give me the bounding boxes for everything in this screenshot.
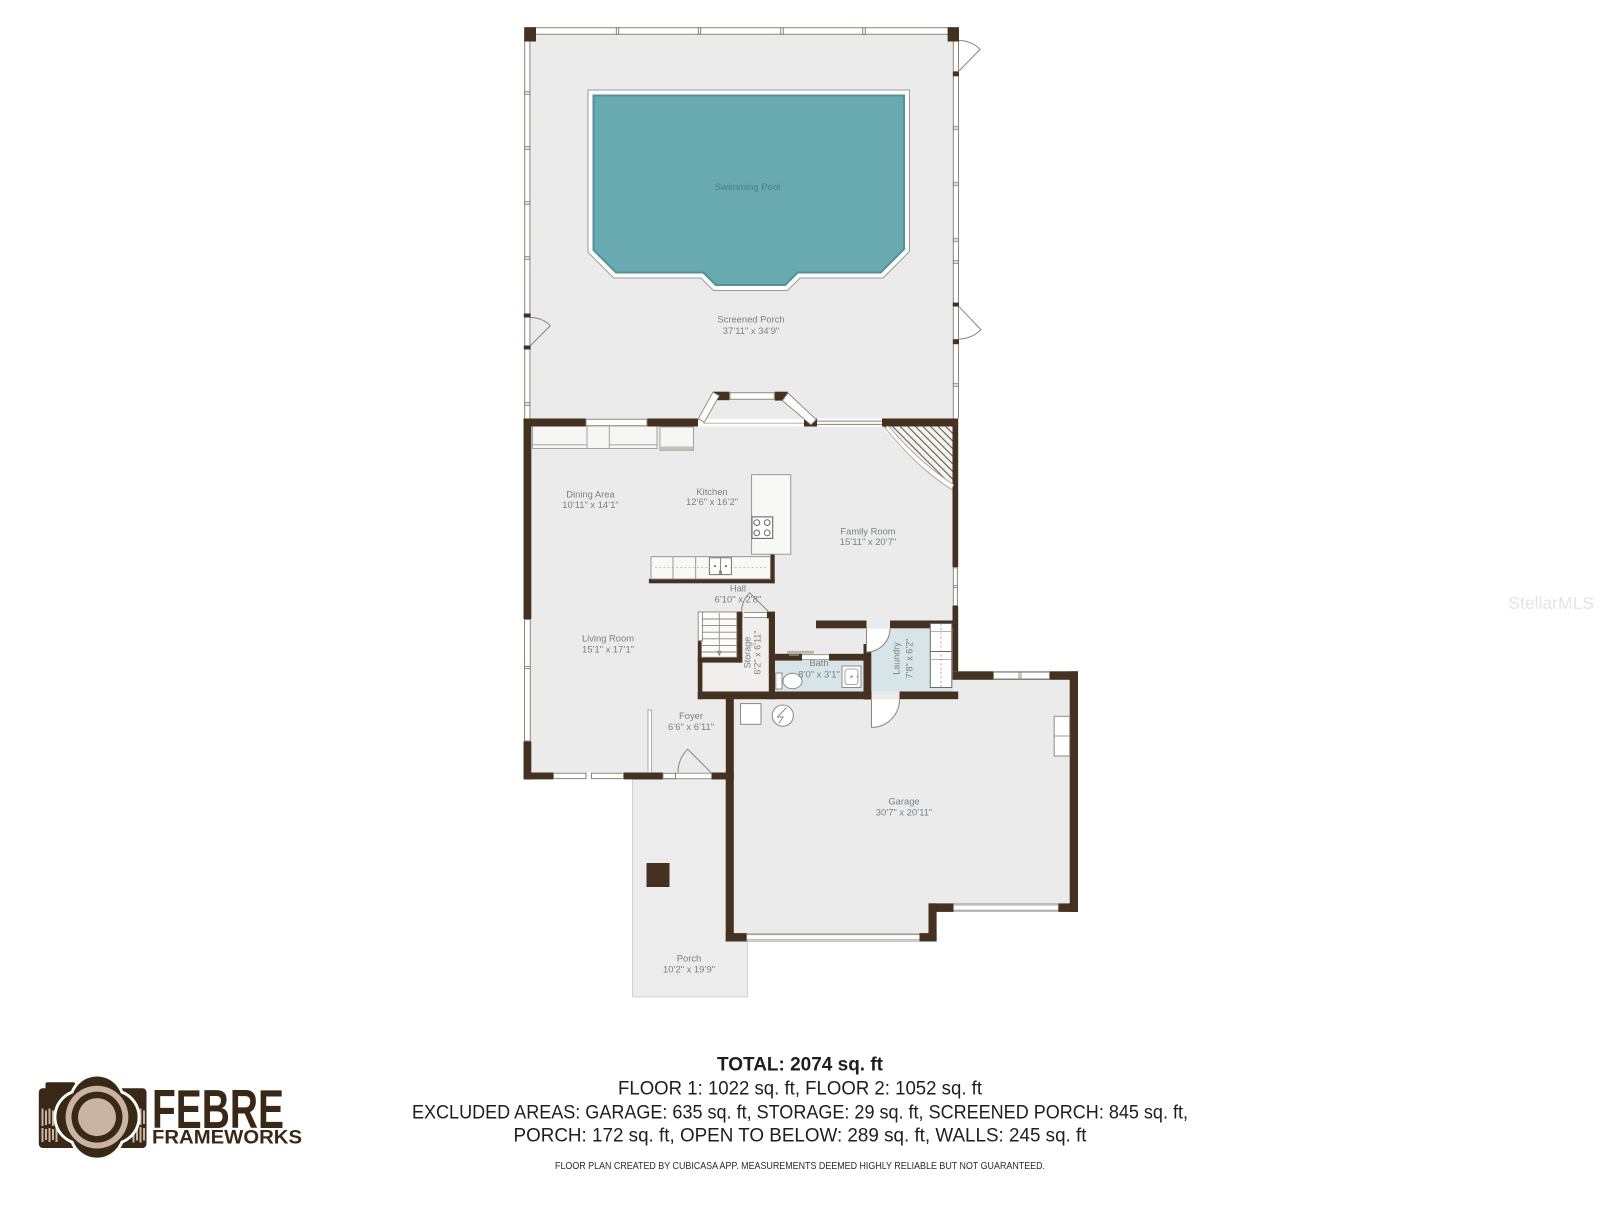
svg-text:FRAMEWORKS: FRAMEWORKS — [152, 1127, 302, 1149]
svg-text:12’6" x 16’2": 12’6" x 16’2" — [686, 496, 738, 507]
svg-text:FLOOR PLAN CREATED BY CUBICASA: FLOOR PLAN CREATED BY CUBICASA APP. MEAS… — [555, 1160, 1045, 1172]
svg-text:10’11" x 14’1": 10’11" x 14’1" — [562, 499, 619, 510]
svg-text:15’11" x 20’7": 15’11" x 20’7" — [840, 536, 897, 547]
svg-text:Living Room: Living Room — [582, 633, 634, 644]
svg-text:Porch: Porch — [677, 953, 702, 964]
svg-text:Screened Porch: Screened Porch — [717, 314, 784, 325]
svg-text:6’10" x 2’8": 6’10" x 2’8" — [715, 594, 762, 605]
svg-text:Storage: Storage — [743, 637, 753, 669]
svg-text:6’2" x 6’11": 6’2" x 6’11" — [753, 630, 763, 674]
svg-text:6’6" x 6’11": 6’6" x 6’11" — [668, 721, 714, 732]
svg-text:37’11" x 34’9": 37’11" x 34’9" — [723, 325, 780, 336]
svg-text:Swimming Pool: Swimming Pool — [715, 182, 780, 193]
svg-text:8’0" x 3’1": 8’0" x 3’1" — [798, 669, 840, 680]
svg-text:StellarMLS: StellarMLS — [1508, 593, 1594, 613]
svg-text:7’8" x 6’2": 7’8" x 6’2" — [905, 639, 915, 679]
svg-text:Bath: Bath — [809, 657, 828, 668]
svg-text:FLOOR 1: 1022 sq. ft, FLOOR 2:: FLOOR 1: 1022 sq. ft, FLOOR 2: 1052 sq. … — [618, 1078, 983, 1100]
svg-text:Hall: Hall — [730, 583, 746, 594]
svg-text:10’2" x 19’9": 10’2" x 19’9" — [663, 964, 715, 975]
svg-text:15’1" x 17’1": 15’1" x 17’1" — [582, 644, 634, 655]
svg-text:Laundry: Laundry — [892, 642, 902, 675]
svg-text:PORCH: 172 sq. ft, OPEN TO BEL: PORCH: 172 sq. ft, OPEN TO BELOW: 289 sq… — [514, 1125, 1088, 1147]
svg-text:Garage: Garage — [888, 796, 919, 807]
svg-text:30’7" x 20’11": 30’7" x 20’11" — [876, 807, 933, 818]
svg-text:Family Room: Family Room — [840, 526, 895, 537]
svg-text:EXCLUDED AREAS: GARAGE: 635 sq: EXCLUDED AREAS: GARAGE: 635 sq. ft, STOR… — [412, 1102, 1188, 1124]
svg-text:TOTAL: 2074 sq. ft: TOTAL: 2074 sq. ft — [717, 1054, 883, 1076]
svg-text:Foyer: Foyer — [679, 710, 703, 721]
